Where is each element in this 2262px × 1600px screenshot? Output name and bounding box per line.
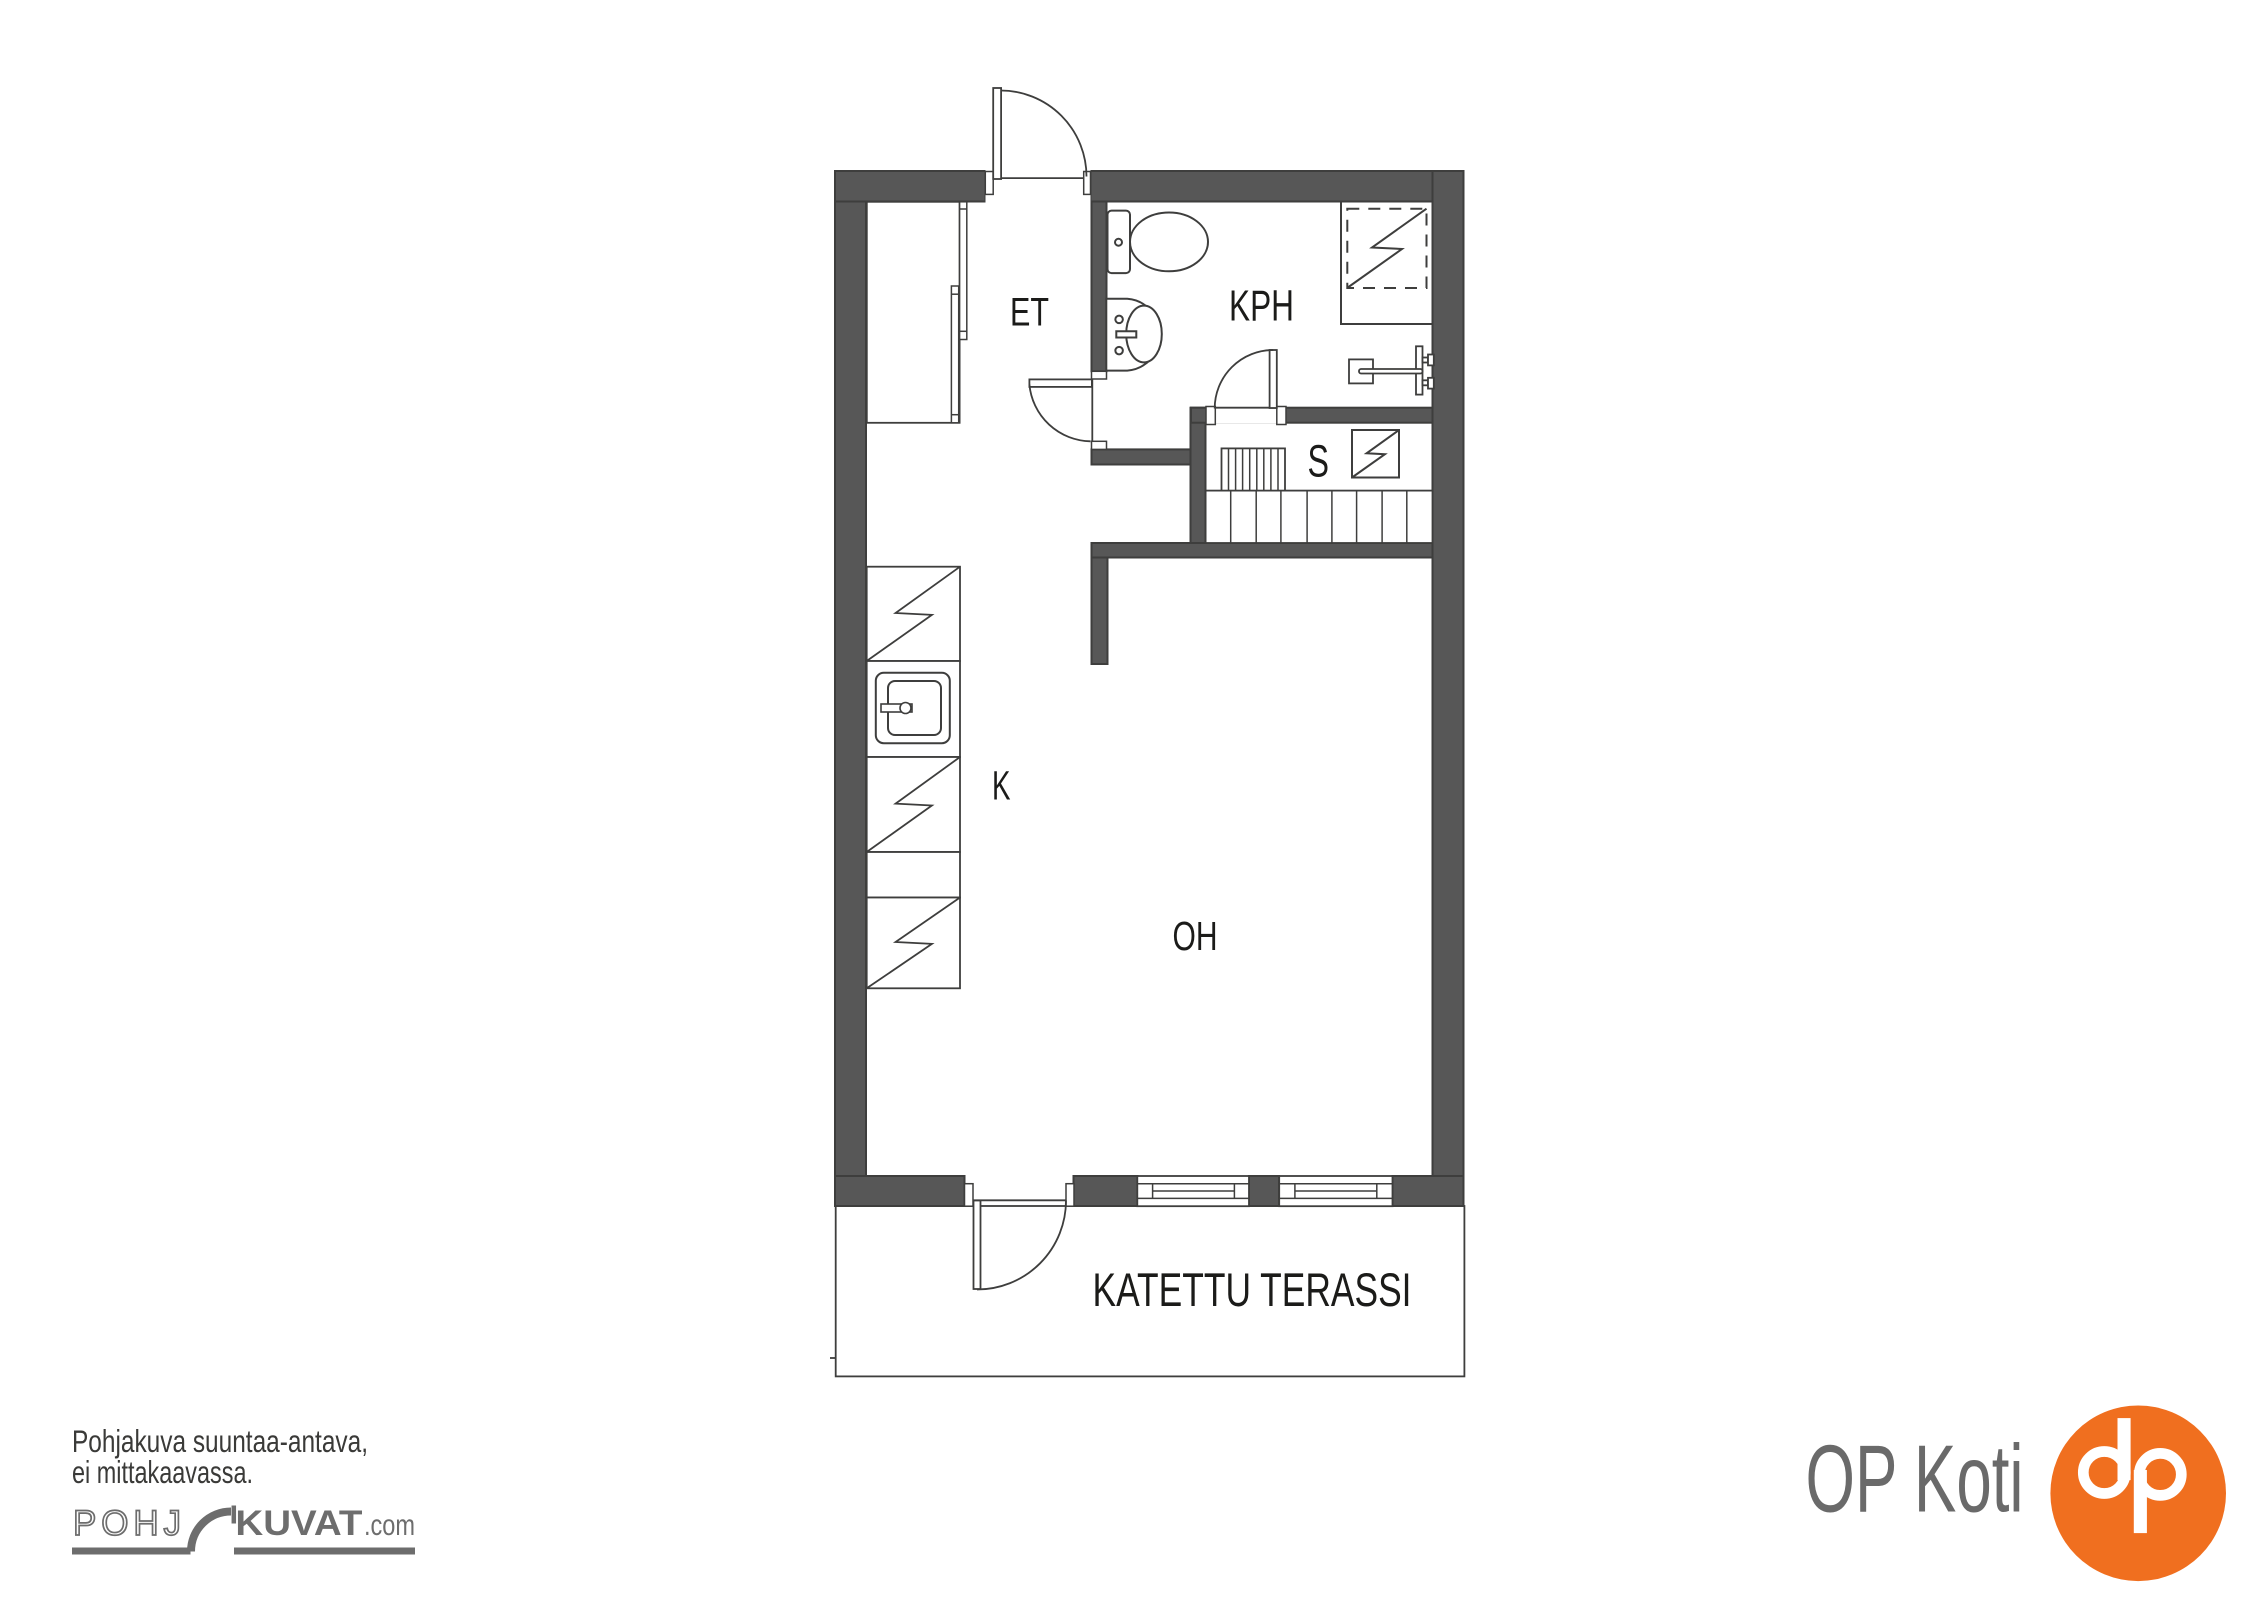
svg-text:OP Koti: OP Koti [1806, 1426, 2024, 1533]
svg-text:OH: OH [1173, 913, 1218, 959]
svg-text:KUVAT: KUVAT [235, 1504, 362, 1543]
svg-text:POHJ: POHJ [73, 1504, 181, 1543]
svg-text:K: K [992, 763, 1011, 809]
svg-text:S: S [1308, 436, 1330, 487]
svg-text:ei mittakaavassa.: ei mittakaavassa. [72, 1454, 253, 1490]
svg-text:.com: .com [364, 1509, 415, 1542]
svg-text:ET: ET [1010, 289, 1049, 334]
svg-text:KPH: KPH [1229, 282, 1294, 330]
svg-text:KATETTU TERASSI: KATETTU TERASSI [1093, 1264, 1412, 1317]
